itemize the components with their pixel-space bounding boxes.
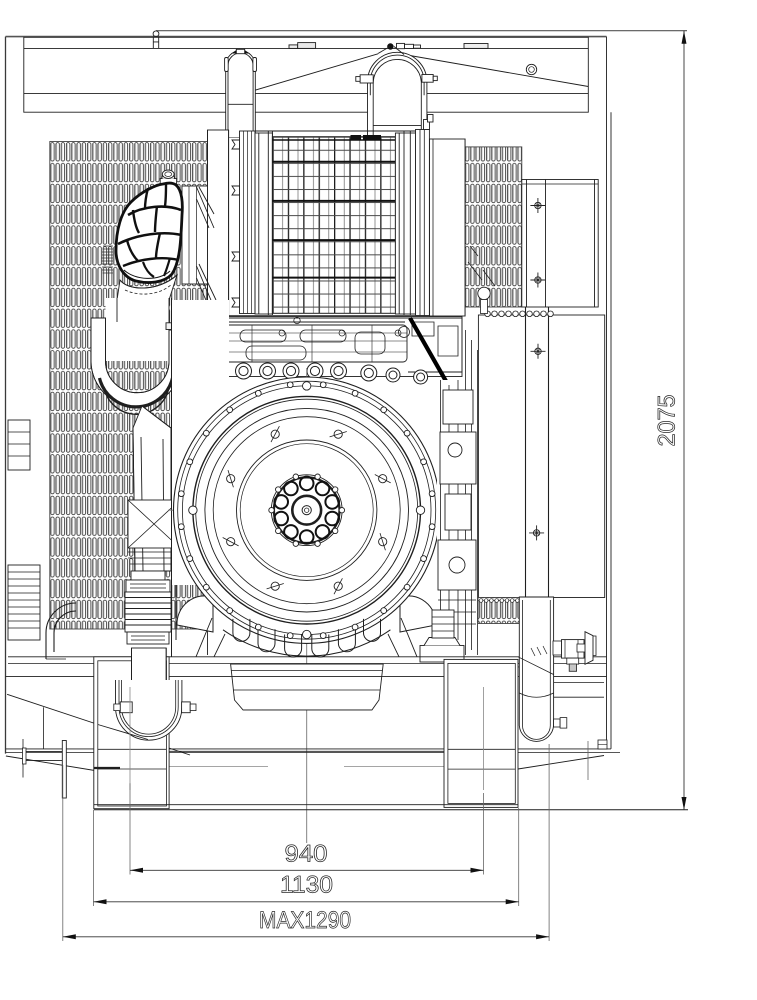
svg-text:940: 940	[285, 841, 328, 868]
svg-text:1130: 1130	[280, 872, 333, 899]
svg-text:2075: 2075	[654, 395, 681, 447]
svg-text:MAX1290: MAX1290	[259, 907, 351, 934]
